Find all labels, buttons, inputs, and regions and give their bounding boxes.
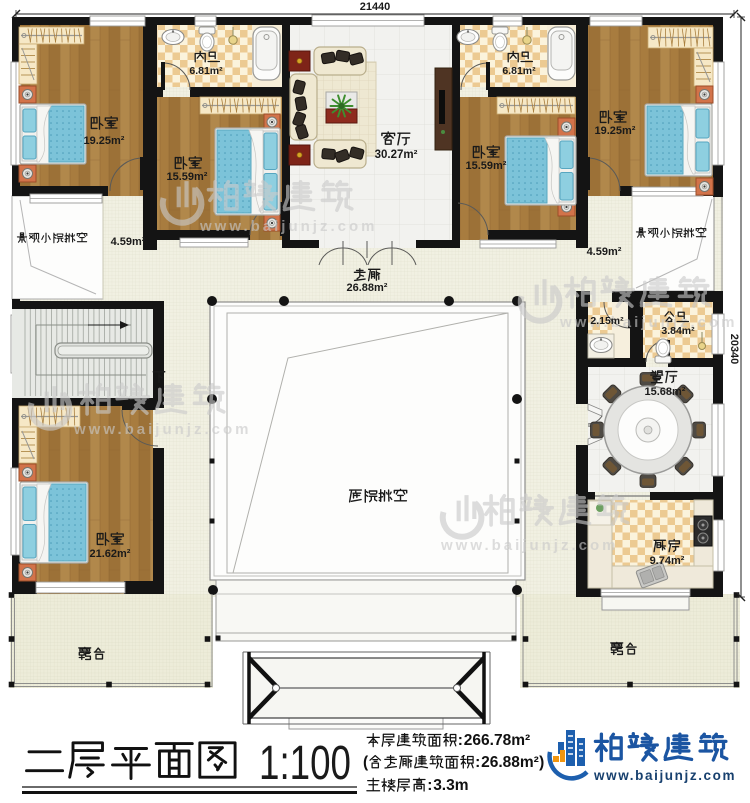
- svg-text:26.88m²: 26.88m²: [347, 282, 388, 294]
- svg-text:15.59m²: 15.59m²: [466, 160, 507, 172]
- svg-text:6.81m²: 6.81m²: [189, 65, 223, 77]
- svg-text:19.25m²: 19.25m²: [595, 125, 636, 137]
- svg-text:www.baijunjz.com: www.baijunjz.com: [559, 314, 737, 331]
- svg-text::: :: [458, 732, 463, 749]
- svg-text:21440: 21440: [360, 1, 391, 13]
- svg-text::: :: [427, 777, 432, 794]
- svg-text:www.baijunjz.com: www.baijunjz.com: [440, 537, 618, 554]
- svg-text:): ): [539, 754, 544, 771]
- svg-text:20340: 20340: [728, 334, 740, 365]
- svg-text:9.74m²: 9.74m²: [650, 555, 685, 567]
- svg-text:3.3m: 3.3m: [433, 777, 468, 794]
- svg-text:30.27m²: 30.27m²: [375, 149, 418, 161]
- svg-text:21.62m²: 21.62m²: [90, 548, 131, 560]
- svg-text:3.84m²: 3.84m²: [661, 325, 695, 337]
- svg-text:19.25m²: 19.25m²: [84, 135, 125, 147]
- svg-text::: :: [475, 754, 480, 771]
- svg-text:(: (: [363, 754, 369, 771]
- svg-text:266.78m²: 266.78m²: [464, 732, 530, 749]
- svg-text:2.15m²: 2.15m²: [590, 315, 624, 327]
- svg-text:4.59m²: 4.59m²: [587, 246, 622, 258]
- svg-text:1:100: 1:100: [259, 737, 351, 790]
- svg-text:www.baijunjz.com: www.baijunjz.com: [73, 421, 251, 438]
- svg-text:4.59m²: 4.59m²: [111, 236, 146, 248]
- svg-text:15.59m²: 15.59m²: [167, 171, 208, 183]
- svg-text:6.81m²: 6.81m²: [502, 65, 536, 77]
- svg-text:www.baijunjz.com: www.baijunjz.com: [199, 218, 377, 235]
- svg-text:26.88m²: 26.88m²: [481, 754, 539, 771]
- svg-text:www.baijunjz.com: www.baijunjz.com: [593, 768, 736, 783]
- svg-text:15.68m²: 15.68m²: [645, 386, 686, 398]
